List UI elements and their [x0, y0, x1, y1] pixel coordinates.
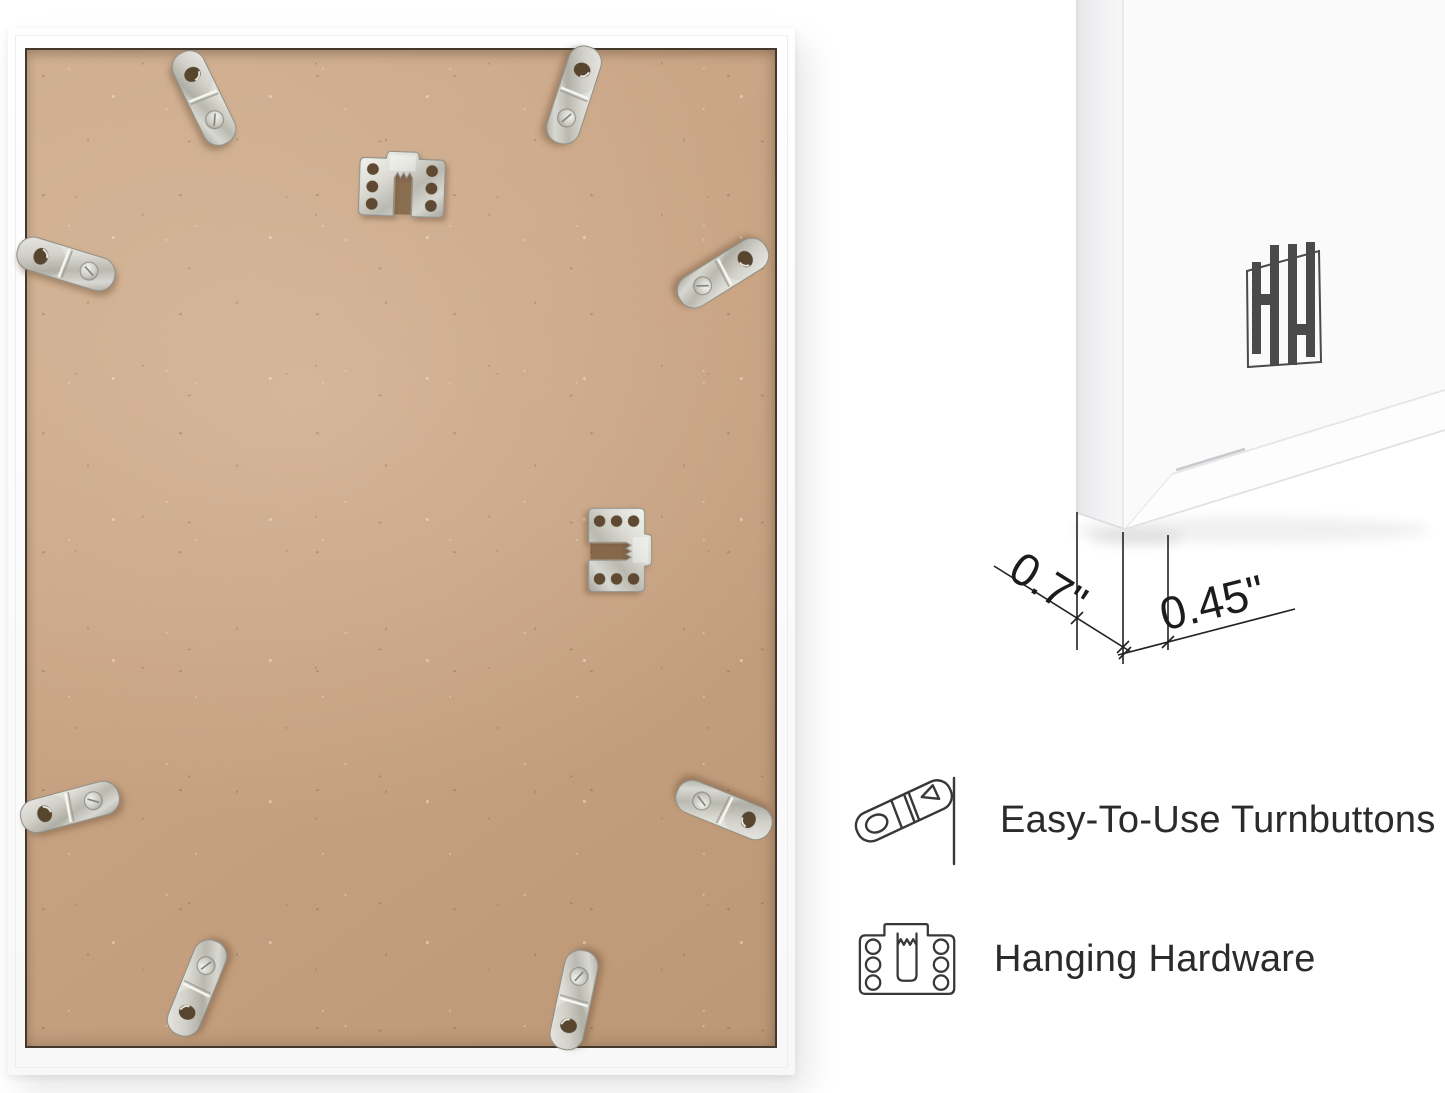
feature-turnbuttons: Easy-To-Use Turnbuttons [850, 772, 1436, 868]
feature-hanging-hardware-label: Hanging Hardware [994, 938, 1316, 981]
feature-turnbuttons-label: Easy-To-Use Turnbuttons [1000, 799, 1436, 842]
feature-hanging-hardware: Hanging Hardware [858, 920, 1316, 998]
turnbutton-icon [850, 772, 970, 868]
dimension-face-label: 0.45" [1154, 564, 1269, 640]
hanging-hardware-icon [858, 920, 958, 998]
product-infographic: 0.7" 0.45" Easy-To-Use Turnbuttons [0, 0, 1445, 1093]
dimension-depth-label: 0.7" [1001, 541, 1097, 628]
